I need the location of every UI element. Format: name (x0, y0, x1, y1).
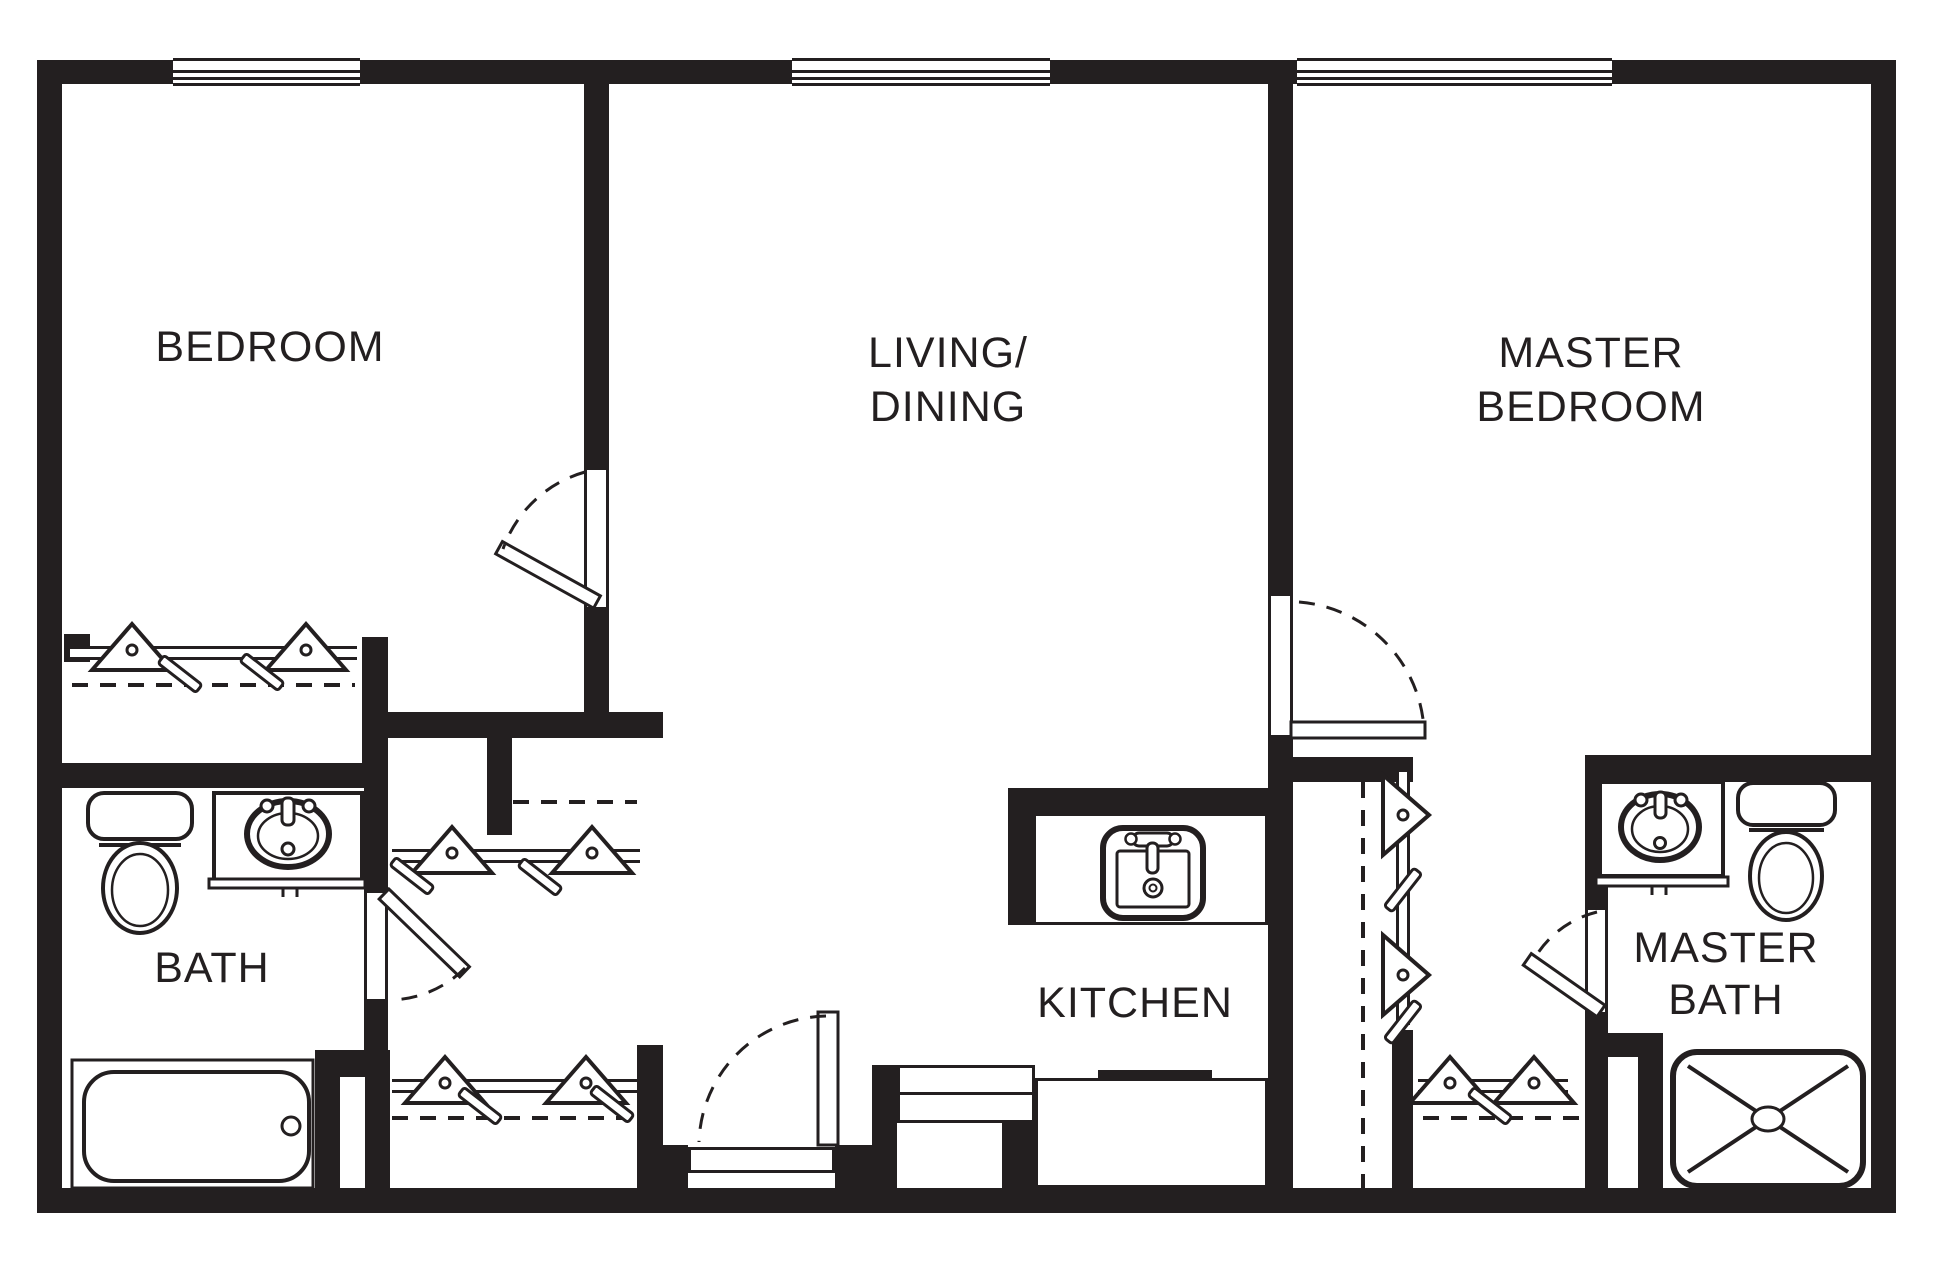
door-swing-icon (379, 889, 469, 1000)
shower-icon (1673, 1052, 1863, 1186)
door-swing-icon (1291, 602, 1425, 738)
door-swing-icon (1523, 912, 1605, 1017)
toilet-icon (1738, 783, 1835, 920)
door-swing-icon (699, 1012, 838, 1145)
kitchen-sink-icon (1103, 828, 1203, 918)
bathtub-icon (72, 1060, 313, 1188)
floor-plan: BEDROOM LIVING/ DINING MASTER BEDROOM BA… (0, 0, 1948, 1277)
toilet-icon (88, 793, 192, 933)
fixtures-layer (0, 0, 1948, 1277)
vanity-sink-icon (209, 793, 365, 897)
door-swing-icon (496, 472, 601, 608)
vanity-sink-icon (1596, 782, 1728, 895)
